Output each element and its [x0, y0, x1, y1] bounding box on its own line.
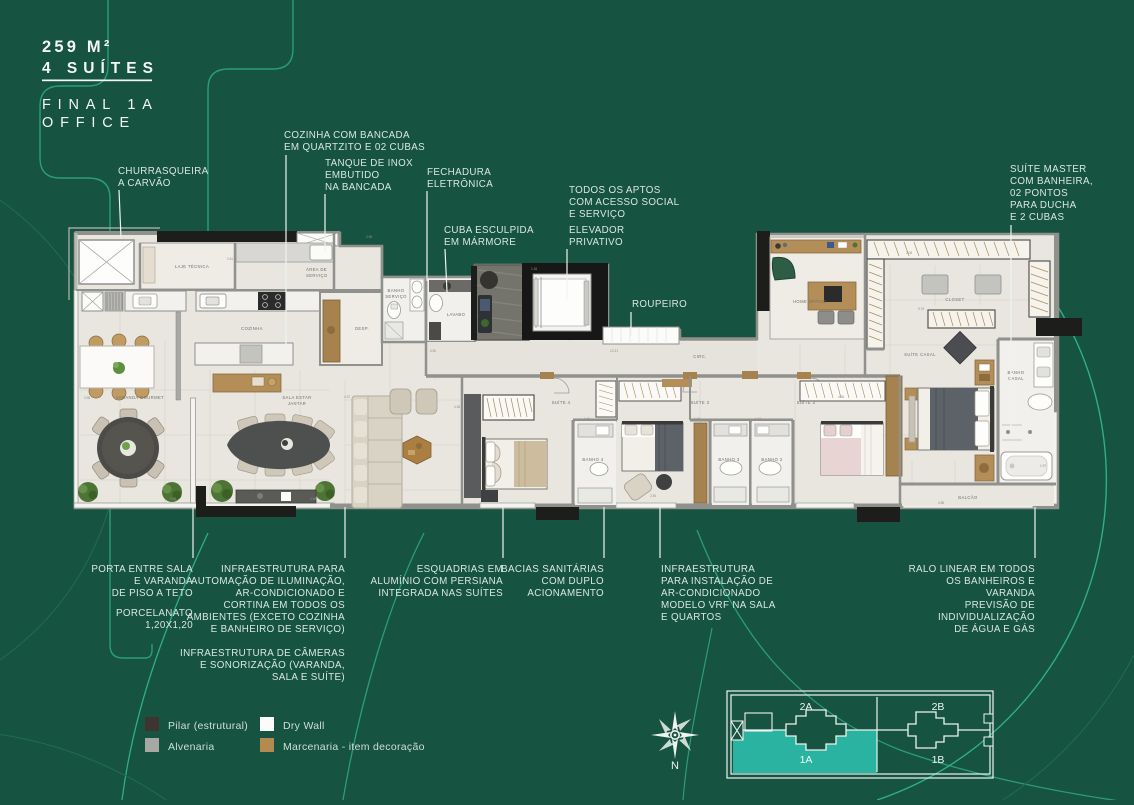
svg-text:2.61: 2.61 [227, 257, 233, 261]
svg-text:3.95: 3.95 [170, 497, 176, 501]
svg-text:LAJE TÉCNICA: LAJE TÉCNICA [175, 264, 209, 269]
svg-text:2.08: 2.08 [906, 251, 912, 255]
svg-text:CHURRASQUEIRA: CHURRASQUEIRA [118, 166, 209, 177]
svg-text:CORTINA EM TODOS OS: CORTINA EM TODOS OS [223, 600, 345, 611]
svg-text:2B: 2B [932, 701, 945, 713]
svg-text:1.40: 1.40 [755, 417, 761, 421]
svg-text:4 SUÍTES: 4 SUÍTES [42, 60, 159, 77]
svg-text:BANHO: BANHO [1008, 370, 1025, 375]
svg-text:1.97: 1.97 [1040, 464, 1046, 468]
svg-text:Dry Wall: Dry Wall [283, 720, 325, 732]
svg-text:COM ACESSO SOCIAL: COM ACESSO SOCIAL [569, 197, 680, 208]
svg-text:Pilar (estrutural): Pilar (estrutural) [168, 720, 248, 732]
svg-text:TANQUE DE INOX: TANQUE DE INOX [325, 158, 413, 169]
svg-text:HOME OFFICE: HOME OFFICE [793, 299, 826, 304]
svg-text:CUBA ESCULPIDA: CUBA ESCULPIDA [444, 225, 534, 236]
svg-text:SUÍTE 2: SUÍTE 2 [797, 400, 816, 405]
svg-text:COM DUPLO: COM DUPLO [542, 576, 605, 587]
svg-text:2A: 2A [800, 701, 813, 713]
svg-text:ÁREA DE: ÁREA DE [306, 267, 327, 272]
svg-text:Alvenaria: Alvenaria [168, 741, 214, 753]
svg-text:INFRAESTRUTURA DE CÂMERAS: INFRAESTRUTURA DE CÂMERAS [180, 648, 345, 659]
svg-text:BANHO 3: BANHO 3 [718, 457, 739, 462]
svg-text:4.88: 4.88 [938, 501, 944, 505]
svg-text:INFRAESTRUTURA: INFRAESTRUTURA [661, 564, 755, 575]
svg-text:6.50: 6.50 [430, 349, 436, 353]
svg-text:RALO LINEAR EM TODOS: RALO LINEAR EM TODOS [909, 564, 1036, 575]
svg-text:SERVIÇO: SERVIÇO [385, 294, 407, 299]
svg-text:0.96: 0.96 [366, 235, 372, 239]
svg-text:ALUMÍNIO COM PERSIANA: ALUMÍNIO COM PERSIANA [370, 576, 503, 587]
svg-text:PRIVATIVO: PRIVATIVO [569, 237, 623, 248]
svg-text:3.98: 3.98 [310, 497, 316, 501]
svg-text:MODELO VRF NA SALA: MODELO VRF NA SALA [661, 600, 776, 611]
svg-text:E SERVIÇO: E SERVIÇO [569, 209, 625, 220]
svg-text:COZINHA: COZINHA [241, 326, 263, 331]
svg-text:4.36: 4.36 [838, 395, 844, 399]
svg-text:N: N [671, 760, 679, 772]
svg-text:1A: 1A [800, 754, 813, 766]
svg-text:BACIAS SANITÁRIAS: BACIAS SANITÁRIAS [501, 564, 604, 575]
svg-text:INDIVIDUALIZAÇÃO: INDIVIDUALIZAÇÃO [938, 612, 1035, 623]
svg-text:PARA INSTALAÇÃO DE: PARA INSTALAÇÃO DE [661, 576, 773, 587]
svg-text:4.36: 4.36 [454, 405, 460, 409]
svg-text:E 2 CUBAS: E 2 CUBAS [1010, 212, 1064, 223]
svg-text:1.46: 1.46 [694, 417, 700, 421]
svg-text:CIRC.: CIRC. [693, 354, 706, 359]
svg-text:SERVIÇO: SERVIÇO [306, 273, 328, 278]
svg-text:TODOS OS APTOS: TODOS OS APTOS [569, 185, 661, 196]
svg-text:Marcenaria - item decoração: Marcenaria - item decoração [283, 741, 425, 753]
svg-text:NA BANCADA: NA BANCADA [325, 182, 392, 193]
svg-text:1.26: 1.26 [531, 267, 537, 271]
svg-text:SALA ESTAR: SALA ESTAR [282, 395, 311, 400]
svg-text:A CARVÃO: A CARVÃO [118, 178, 171, 189]
svg-text:5.76: 5.76 [918, 307, 924, 311]
svg-text:OFFICE: OFFICE [42, 115, 136, 131]
svg-text:ELEVADOR: ELEVADOR [569, 225, 624, 236]
svg-text:DESP.: DESP. [355, 326, 369, 331]
svg-text:BANHO 4: BANHO 4 [582, 457, 603, 462]
svg-text:AMBIENTES (EXCETO COZINHA: AMBIENTES (EXCETO COZINHA [187, 612, 345, 623]
svg-text:ESQUADRIAS EM: ESQUADRIAS EM [417, 564, 503, 575]
svg-text:PORTA ENTRE SALA: PORTA ENTRE SALA [91, 564, 193, 575]
svg-text:1.40: 1.40 [584, 417, 590, 421]
svg-text:FINAL 1A: FINAL 1A [42, 97, 159, 113]
svg-text:BANHO: BANHO [388, 288, 405, 293]
svg-text:3.98: 3.98 [84, 396, 90, 400]
svg-text:SALA E SUÍTE): SALA E SUÍTE) [272, 672, 345, 683]
svg-text:INTEGRADA NAS SUÍTES: INTEGRADA NAS SUÍTES [378, 588, 503, 599]
svg-text:4.37: 4.37 [344, 395, 350, 399]
svg-text:EM QUARTZITO E 02 CUBAS: EM QUARTZITO E 02 CUBAS [284, 142, 425, 153]
svg-text:E SONORIZAÇÃO (VARANDA,: E SONORIZAÇÃO (VARANDA, [200, 660, 345, 671]
svg-text:BANHO 2: BANHO 2 [761, 457, 782, 462]
svg-text:E BANHEIRO DE SERVIÇO): E BANHEIRO DE SERVIÇO) [211, 624, 345, 635]
svg-text:PARA DUCHA: PARA DUCHA [1010, 200, 1077, 211]
svg-text:12.31: 12.31 [610, 349, 618, 353]
svg-text:VARANDA GOURMET: VARANDA GOURMET [116, 395, 164, 400]
svg-text:2.46: 2.46 [650, 494, 656, 498]
svg-text:DE PISO A TETO: DE PISO A TETO [112, 588, 193, 599]
svg-text:259 M²: 259 M² [42, 38, 113, 56]
svg-text:SUÍTE CASAL: SUÍTE CASAL [904, 352, 936, 357]
svg-text:E QUARTOS: E QUARTOS [661, 612, 722, 623]
svg-text:OS BANHEIROS E: OS BANHEIROS E [946, 576, 1035, 587]
svg-text:AR-CONDICIONADO E: AR-CONDICIONADO E [236, 588, 345, 599]
svg-text:VARANDA: VARANDA [986, 588, 1035, 599]
svg-text:E VARANDA: E VARANDA [134, 576, 193, 587]
svg-text:SUÍTE 3: SUÍTE 3 [691, 400, 710, 405]
svg-text:COZINHA COM BANCADA: COZINHA COM BANCADA [284, 130, 410, 141]
svg-text:LAVABO: LAVABO [447, 312, 466, 317]
svg-text:02 PONTOS: 02 PONTOS [1010, 188, 1068, 199]
svg-text:EM MÁRMORE: EM MÁRMORE [444, 237, 516, 248]
svg-text:EMBUTIDO: EMBUTIDO [325, 170, 380, 181]
svg-text:SUÍTE 4: SUÍTE 4 [552, 400, 571, 405]
svg-text:BALCÃO: BALCÃO [958, 495, 978, 500]
svg-text:JANTAR: JANTAR [288, 401, 306, 406]
svg-text:PREVISÃO DE: PREVISÃO DE [965, 600, 1035, 611]
svg-text:COM BANHEIRA,: COM BANHEIRA, [1010, 176, 1093, 187]
svg-text:AUTOMAÇÃO DE ILUMINAÇÃO,: AUTOMAÇÃO DE ILUMINAÇÃO, [191, 576, 345, 587]
svg-text:INFRAESTRUTURA PARA: INFRAESTRUTURA PARA [221, 564, 345, 575]
svg-text:ACIONAMENTO: ACIONAMENTO [527, 588, 604, 599]
svg-text:1B: 1B [932, 754, 945, 766]
svg-text:SUÍTE MASTER: SUÍTE MASTER [1010, 164, 1087, 175]
svg-text:CLOSET: CLOSET [945, 297, 964, 302]
svg-text:ROUPEIRO: ROUPEIRO [632, 299, 687, 310]
svg-text:DE ÁGUA E GÁS: DE ÁGUA E GÁS [954, 624, 1035, 635]
svg-text:ELETRÔNICA: ELETRÔNICA [427, 179, 493, 190]
svg-text:PORCELANATO: PORCELANATO [116, 608, 193, 619]
svg-text:FECHADURA: FECHADURA [427, 167, 491, 178]
svg-text:AR-CONDICIONADO: AR-CONDICIONADO [661, 588, 760, 599]
